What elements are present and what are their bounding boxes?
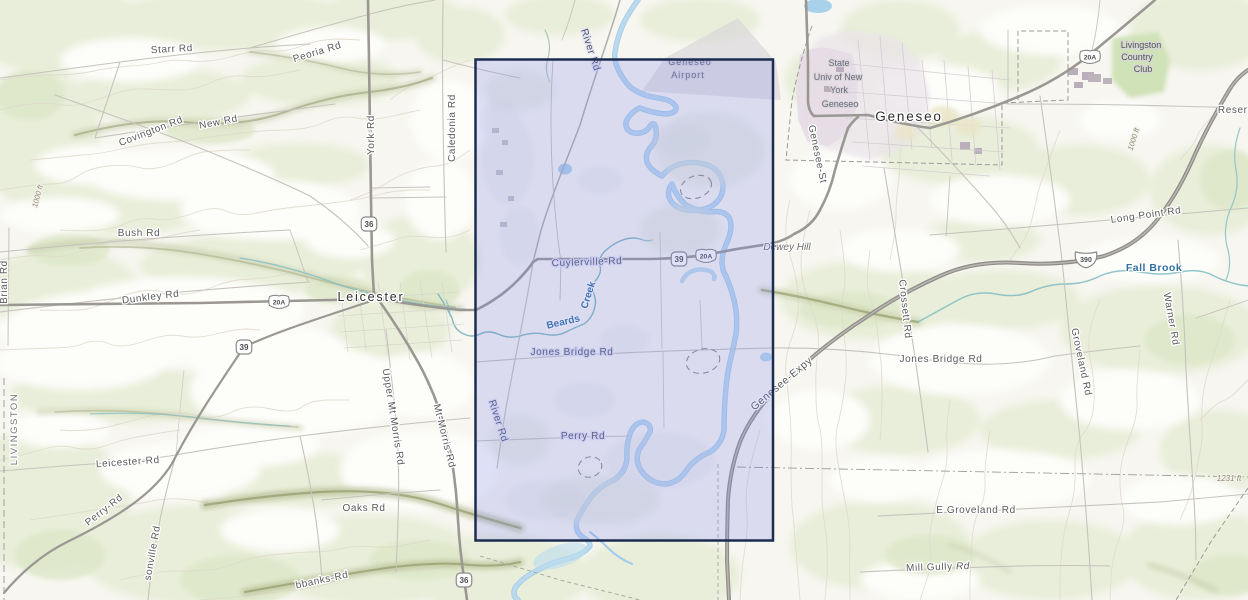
svg-text:39: 39 xyxy=(240,343,249,352)
svg-text:390: 390 xyxy=(1080,257,1092,264)
svg-text:Brian Rd: Brian Rd xyxy=(0,260,10,304)
svg-text:36: 36 xyxy=(460,576,469,585)
svg-text:York-Rd: York-Rd xyxy=(366,115,377,155)
svg-text:Starr Rd: Starr Rd xyxy=(151,43,194,56)
svg-text:State: State xyxy=(828,58,849,68)
svg-text:Livingston: Livingston xyxy=(1121,40,1162,50)
svg-text:Bush Rd: Bush Rd xyxy=(118,228,161,239)
svg-text:LIVINGSTON: LIVINGSTON xyxy=(9,393,20,465)
svg-text:E Groveland Rd: E Groveland Rd xyxy=(936,505,1016,516)
svg-text:1231 ft: 1231 ft xyxy=(1217,474,1242,483)
svg-text:Country: Country xyxy=(1121,52,1153,62)
svg-text:20A: 20A xyxy=(1084,55,1097,62)
svg-text:Univ of New: Univ of New xyxy=(814,72,863,82)
svg-text:Reservoir: Reservoir xyxy=(1218,105,1248,116)
svg-text:Geneseo: Geneseo xyxy=(822,99,859,109)
svg-text:Geneseo: Geneseo xyxy=(875,109,942,124)
svg-text:Leicester: Leicester xyxy=(338,290,405,304)
svg-text:Mill Gully Rd: Mill Gully Rd xyxy=(906,561,970,574)
svg-text:Club: Club xyxy=(1134,64,1153,74)
svg-text:20A: 20A xyxy=(273,300,286,307)
svg-text:Oaks Rd: Oaks Rd xyxy=(342,503,385,514)
svg-text:Jones Bridge Rd: Jones Bridge Rd xyxy=(900,354,983,365)
svg-text:Fall Brook: Fall Brook xyxy=(1126,262,1182,274)
svg-text:36: 36 xyxy=(365,220,374,229)
svg-text:York: York xyxy=(830,85,848,95)
svg-text:Caledonia Rd: Caledonia Rd xyxy=(447,94,458,162)
